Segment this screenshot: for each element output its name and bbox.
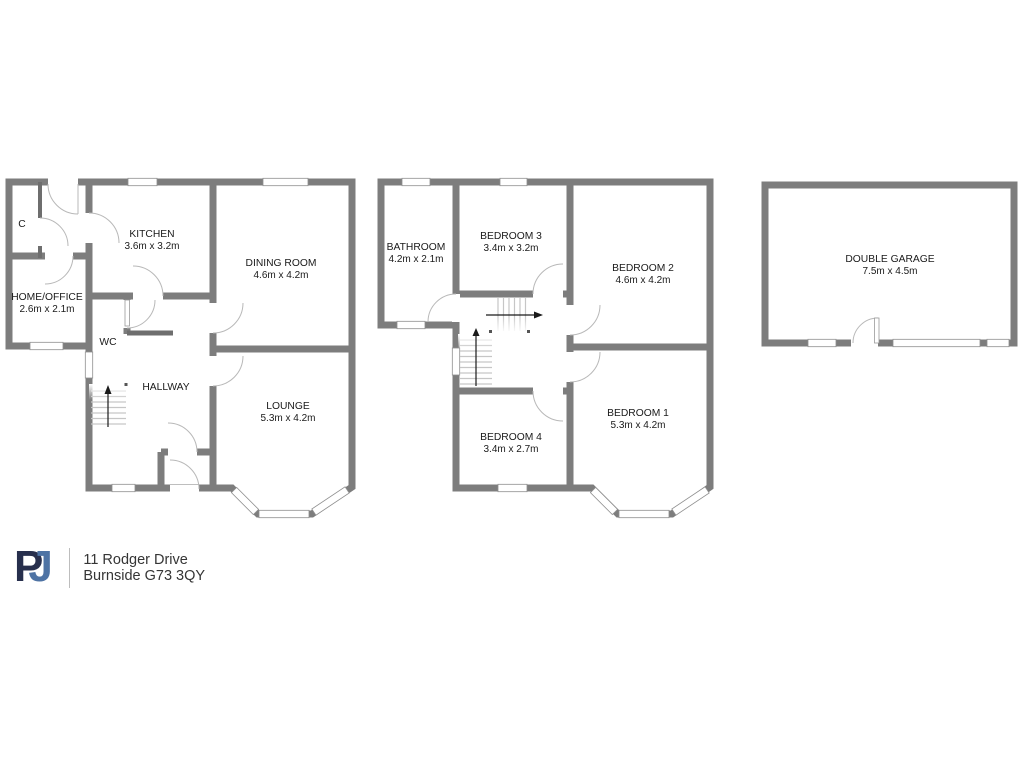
door-gap bbox=[45, 252, 73, 260]
door-gap bbox=[533, 387, 563, 395]
room-label-hallway: HALLWAY bbox=[142, 382, 189, 393]
room-label-bathroom: BATHROOM bbox=[387, 242, 446, 253]
room-label-bedroom3: BEDROOM 3 bbox=[480, 231, 542, 242]
door-gap bbox=[533, 290, 563, 298]
ground-stairs bbox=[89, 383, 128, 427]
door-gap bbox=[48, 178, 78, 186]
room-dims-garage: 7.5m x 4.5m bbox=[862, 266, 917, 277]
room-dims-dining: 4.6m x 4.2m bbox=[253, 270, 308, 281]
window bbox=[112, 484, 135, 491]
door-gap bbox=[168, 448, 197, 456]
room-dims-kitchen: 3.6m x 3.2m bbox=[124, 241, 179, 252]
bay-window bbox=[672, 487, 709, 515]
room-label-garage: DOUBLE GARAGE bbox=[845, 254, 934, 265]
door-leaf bbox=[125, 300, 130, 326]
property-address: 11 Rodger Drive Burnside G73 3QY bbox=[83, 552, 205, 585]
bay-window bbox=[259, 510, 309, 517]
room-label-wc: WC bbox=[99, 337, 117, 348]
window bbox=[987, 339, 1009, 346]
bay-window bbox=[619, 510, 669, 517]
door-gap bbox=[170, 485, 199, 493]
window bbox=[452, 348, 459, 375]
footer-divider bbox=[69, 548, 71, 588]
door-arc bbox=[40, 218, 68, 246]
address-line-2: Burnside G73 3QY bbox=[83, 568, 205, 585]
room-dims-bedroom3: 3.4m x 3.2m bbox=[483, 243, 538, 254]
logo-letter-j: J bbox=[28, 545, 52, 589]
door-gap bbox=[566, 352, 574, 382]
room-label-cupboard: C bbox=[18, 219, 26, 230]
bay-window bbox=[590, 487, 617, 514]
room-label-bedroom1: BEDROOM 1 bbox=[607, 408, 669, 419]
room-dims-bathroom: 4.2m x 2.1m bbox=[388, 254, 443, 265]
window bbox=[85, 352, 92, 378]
room-dims-office: 2.6m x 2.1m bbox=[19, 304, 74, 315]
door-arc bbox=[570, 305, 600, 335]
window bbox=[893, 339, 980, 346]
ground-interior-walls bbox=[9, 182, 352, 489]
room-label-kitchen: KITCHEN bbox=[129, 229, 174, 240]
door-gap bbox=[452, 294, 460, 322]
door-gap bbox=[133, 292, 163, 300]
door-arc bbox=[168, 423, 197, 452]
window bbox=[263, 178, 308, 185]
bay-window bbox=[231, 487, 258, 514]
door-arc bbox=[48, 184, 78, 214]
door-arc bbox=[428, 294, 456, 322]
room-label-lounge: LOUNGE bbox=[266, 401, 310, 412]
door-gap bbox=[851, 339, 878, 347]
address-line-1: 11 Rodger Drive bbox=[83, 552, 205, 569]
window bbox=[397, 321, 425, 328]
door-arc bbox=[133, 266, 163, 296]
room-dims-bedroom2: 4.6m x 4.2m bbox=[615, 275, 670, 286]
door-arc bbox=[533, 264, 563, 294]
window bbox=[498, 484, 527, 491]
footer: P J 11 Rodger Drive Burnside G73 3QY bbox=[14, 545, 205, 591]
door-gap bbox=[209, 356, 217, 386]
door-gap bbox=[209, 303, 217, 333]
room-dims-bedroom1: 5.3m x 4.2m bbox=[610, 420, 665, 431]
garage-plan: DOUBLE GARAGE 7.5m x 4.5m bbox=[765, 185, 1014, 347]
door-arc bbox=[213, 303, 243, 333]
window bbox=[808, 339, 836, 346]
door-arc bbox=[45, 256, 73, 284]
room-label-dining: DINING ROOM bbox=[246, 258, 317, 269]
first-stairs bbox=[458, 298, 543, 386]
window bbox=[30, 342, 63, 349]
ground-floor-plan: C KITCHEN 3.6m x 3.2m DINING ROOM 4.6m x… bbox=[9, 178, 352, 518]
door-gap bbox=[36, 218, 44, 246]
window bbox=[128, 178, 157, 185]
floorplan-canvas: C KITCHEN 3.6m x 3.2m DINING ROOM 4.6m x… bbox=[0, 0, 1024, 768]
door-arc bbox=[570, 352, 600, 382]
first-floor-plan: BATHROOM 4.2m x 2.1m BEDROOM 3 3.4m x 3.… bbox=[381, 178, 710, 517]
room-label-office: HOME/OFFICE bbox=[11, 292, 83, 303]
room-label-bedroom2: BEDROOM 2 bbox=[612, 263, 674, 274]
bay-window bbox=[312, 487, 349, 515]
window bbox=[402, 178, 430, 185]
door-arc bbox=[533, 391, 563, 421]
door-leaf bbox=[875, 318, 880, 343]
room-dims-bedroom4: 3.4m x 2.7m bbox=[483, 444, 538, 455]
door-arc bbox=[127, 300, 155, 328]
door-arc bbox=[89, 213, 119, 243]
door-arc bbox=[213, 356, 243, 386]
room-dims-lounge: 5.3m x 4.2m bbox=[260, 413, 315, 424]
window bbox=[500, 178, 527, 185]
pj-logo: P J bbox=[14, 545, 53, 591]
door-gap bbox=[566, 305, 574, 335]
room-label-bedroom4: BEDROOM 4 bbox=[480, 432, 542, 443]
door-gap bbox=[85, 213, 93, 243]
